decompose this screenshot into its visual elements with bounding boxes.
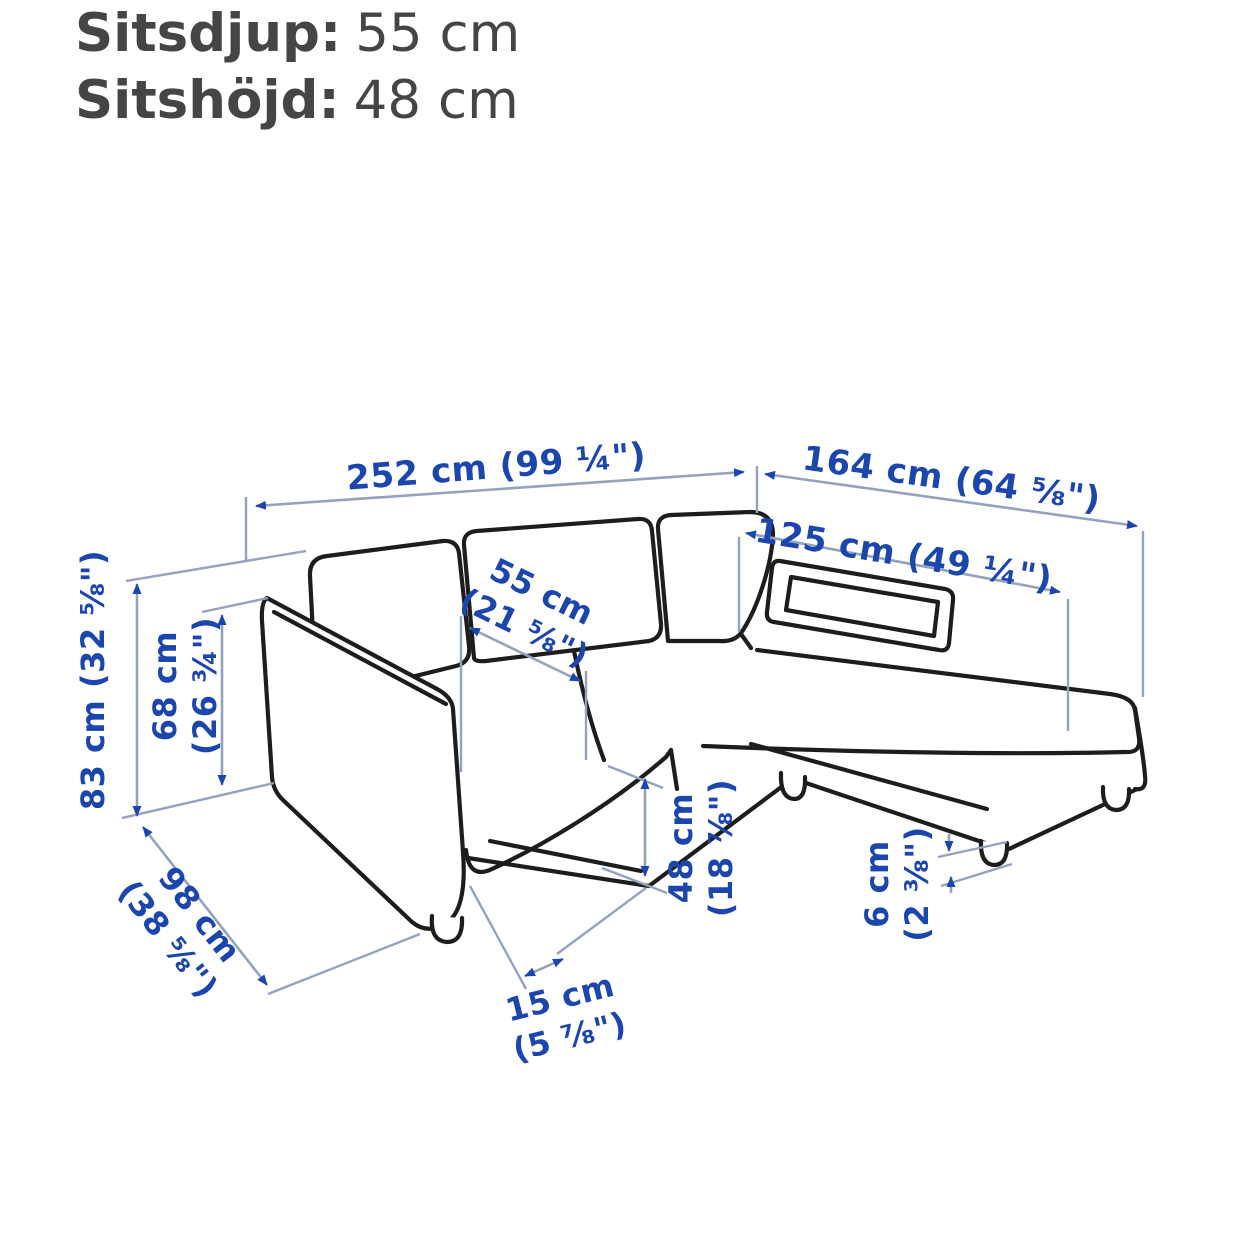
back-to-chaise-join bbox=[741, 634, 751, 648]
dim-armrest-height-line2: (26 ¾") bbox=[186, 617, 224, 755]
sofa-foot-chaise-right bbox=[1103, 787, 1129, 810]
sofa-foot-armrest bbox=[432, 916, 462, 942]
sofa-foot-middle bbox=[781, 773, 805, 799]
dim-total-depth-label: 164 cm (64 ⅝") bbox=[800, 438, 1103, 519]
dim-floor-clearance-line2: (2 ⅜") bbox=[898, 826, 936, 941]
dim-seat-height-line1: 48 cm bbox=[662, 793, 700, 903]
dim-total-height-label: 83 cm (32 ⅝") bbox=[74, 550, 112, 810]
dim-armrest-height-line1: 68 cm bbox=[146, 631, 184, 741]
dim-seat-height-line2: (18 ⅞") bbox=[702, 779, 740, 917]
ext-98-bottom bbox=[268, 934, 420, 994]
ext-back-top-diagonal bbox=[126, 551, 306, 581]
tick-68-top bbox=[202, 598, 268, 612]
ext-15-right bbox=[557, 888, 646, 954]
chaise-base-bottom-edge bbox=[794, 779, 994, 846]
dim-leg-setback-label: 15 cm (5 ⅞") bbox=[499, 965, 630, 1069]
dim-chaise-length-label: 125 cm (49 ¼") bbox=[752, 511, 1055, 600]
dim-armrest-height-label: 68 cm (26 ¾") bbox=[146, 617, 224, 755]
seat-chaise-junction bbox=[671, 750, 677, 789]
dim-floor-clearance-line1: 6 cm bbox=[858, 840, 896, 928]
seat-front-edge bbox=[466, 750, 671, 872]
dim-floor-clearance-label: 6 cm (2 ⅜") bbox=[858, 826, 936, 941]
sofa-dimension-diagram: 252 cm (99 ¼") 164 cm (64 ⅝") 125 cm (49… bbox=[0, 0, 1242, 1242]
ext-15-left bbox=[470, 886, 526, 989]
measure-15 bbox=[525, 959, 563, 976]
tick-83-68-bottom bbox=[122, 783, 274, 818]
chaise-seat-cushion bbox=[703, 650, 1139, 753]
dim-sofa-depth-label: 98 cm (38 ⅝") bbox=[111, 848, 258, 1005]
